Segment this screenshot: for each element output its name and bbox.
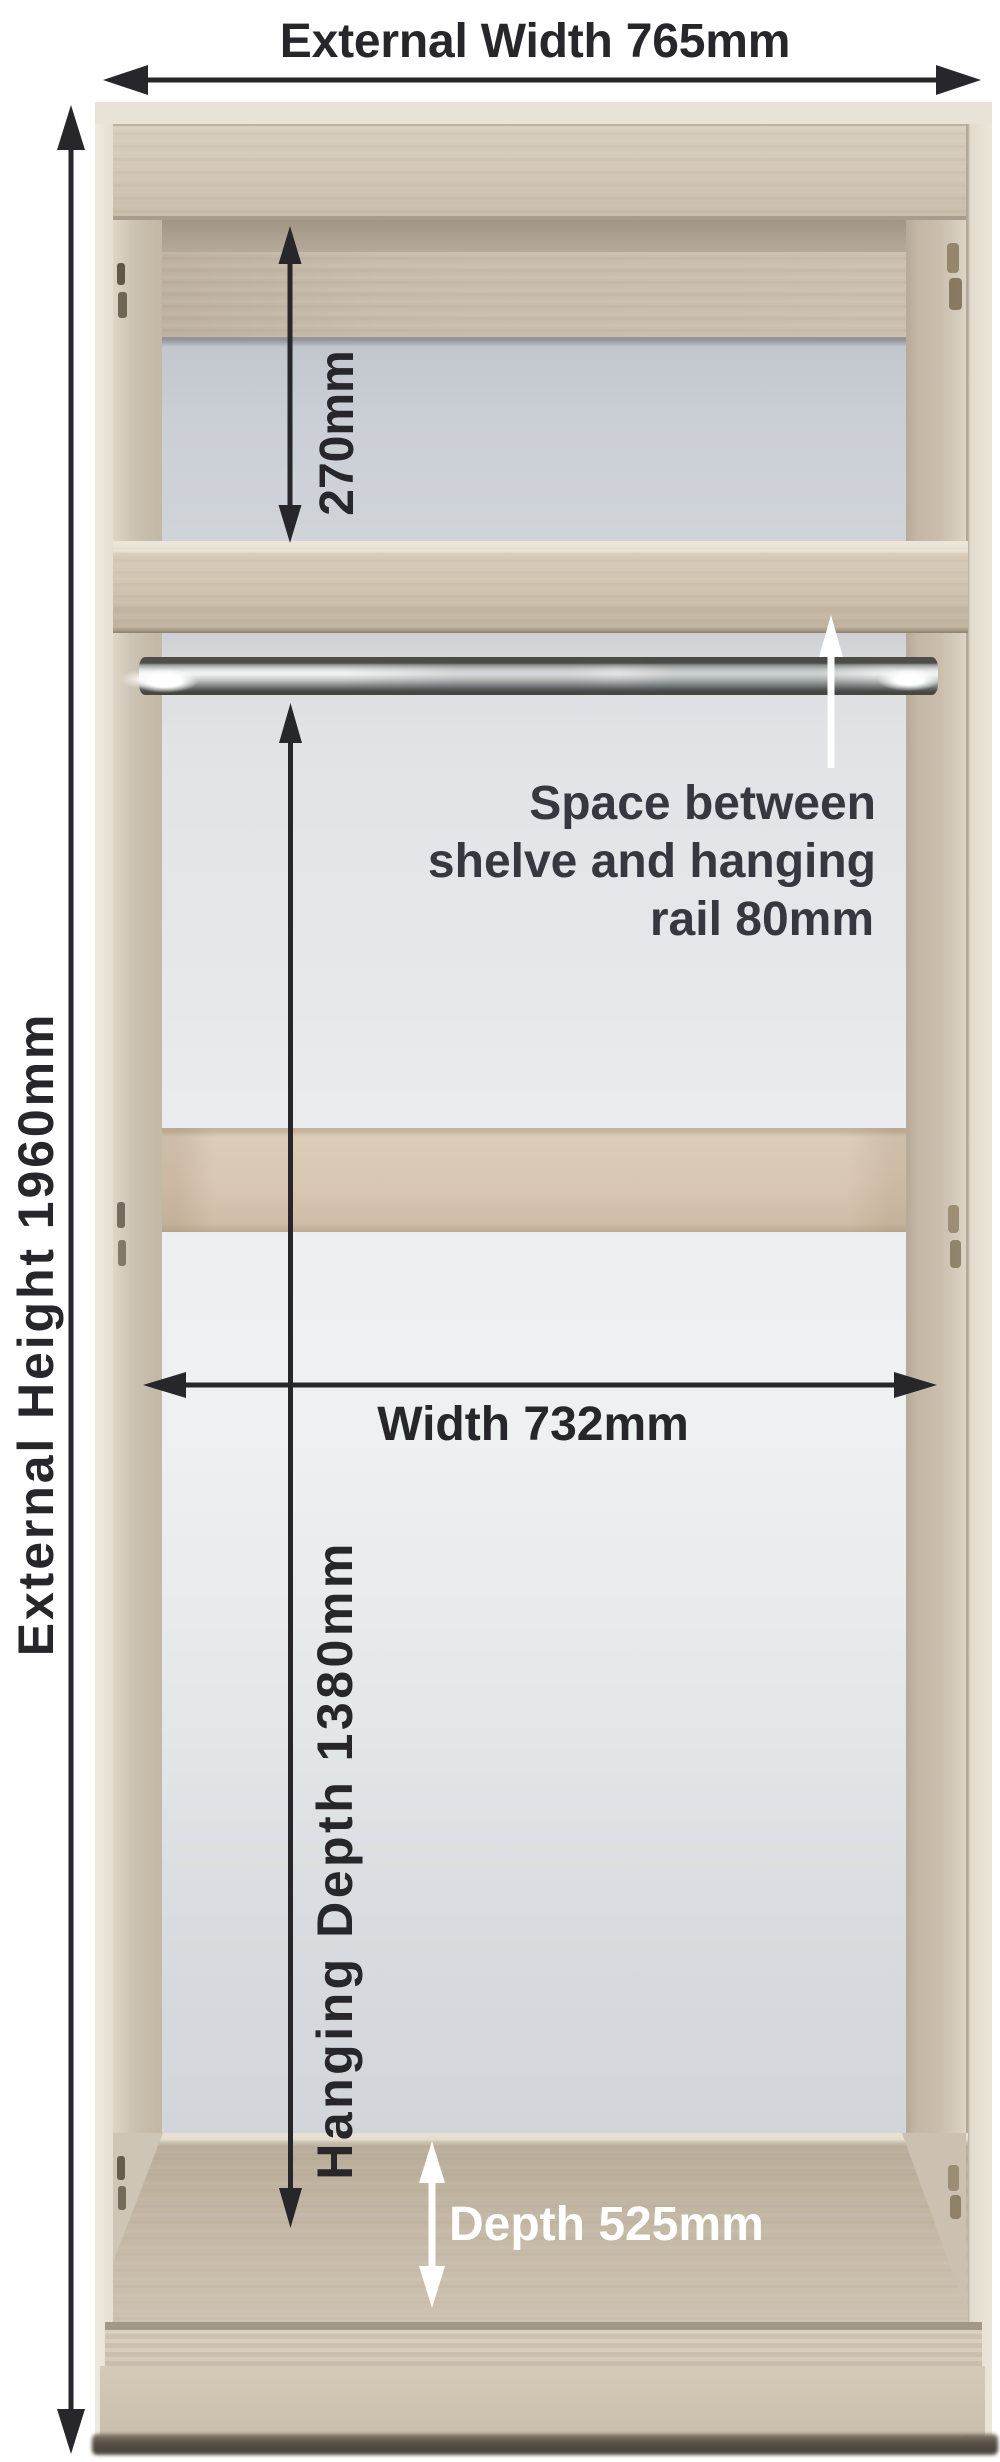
svg-text:External Height 1960mm: External Height 1960mm xyxy=(8,1012,64,1657)
svg-text:shelve and hanging: shelve and hanging xyxy=(428,835,876,888)
svg-text:rail 80mm: rail 80mm xyxy=(650,893,874,946)
svg-text:270mm: 270mm xyxy=(311,350,364,515)
svg-text:Width 732mm: Width 732mm xyxy=(377,1398,689,1451)
svg-text:Space between: Space between xyxy=(529,777,876,830)
svg-text:Depth 525mm: Depth 525mm xyxy=(449,2198,764,2251)
svg-text:External Width 765mm: External Width 765mm xyxy=(280,15,790,68)
svg-text:Hanging Depth 1380mm: Hanging Depth 1380mm xyxy=(307,1540,363,2180)
